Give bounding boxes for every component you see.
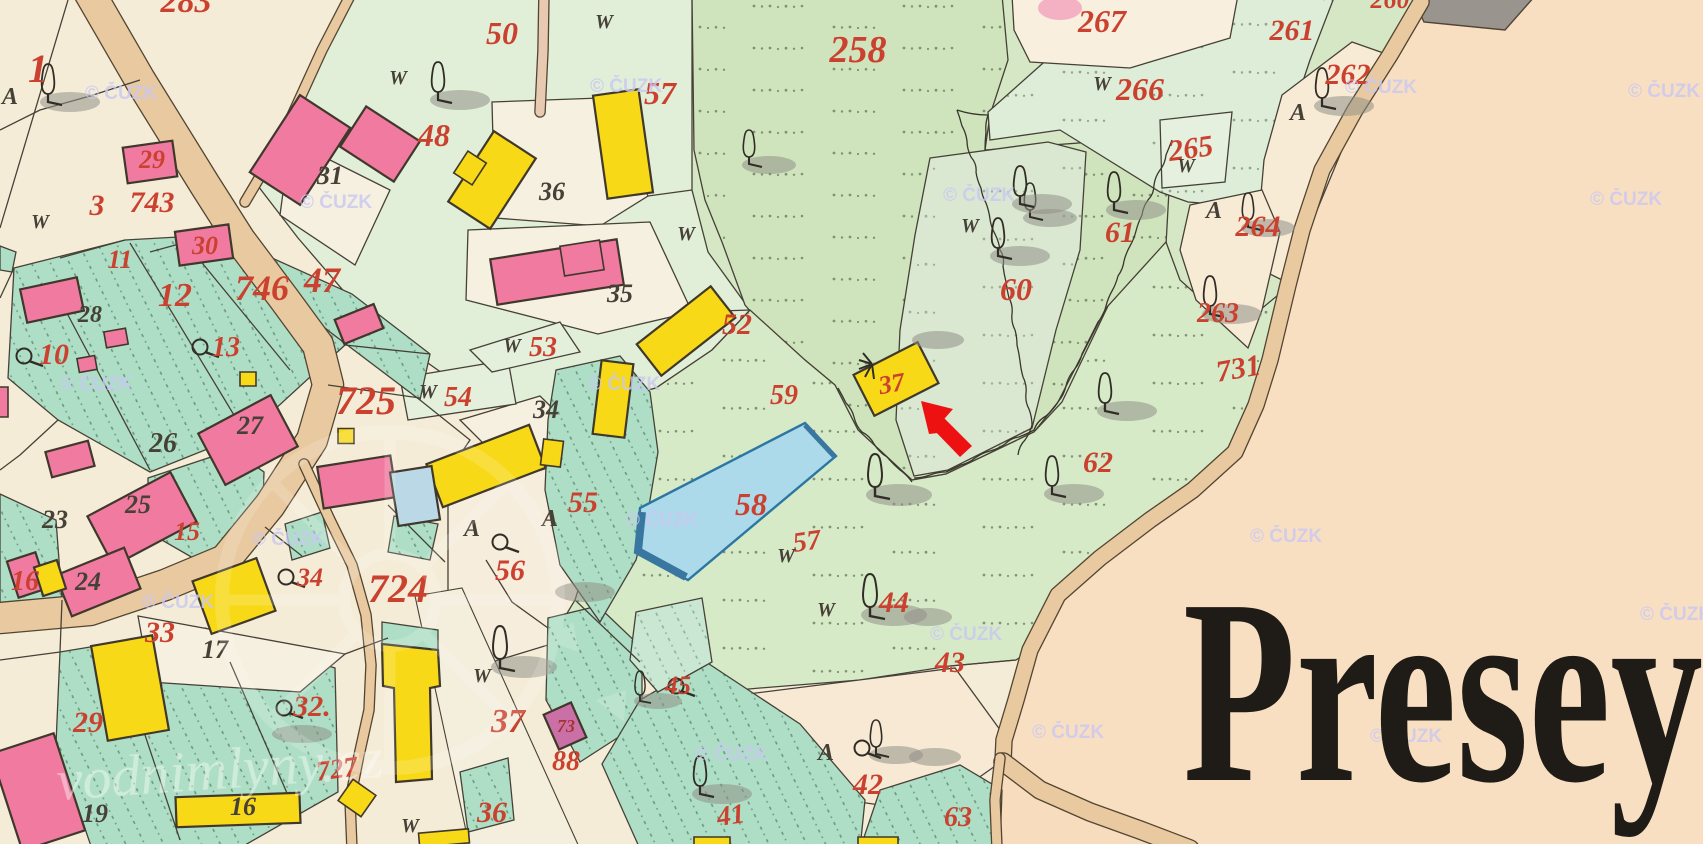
svg-text:© ČUZK: © ČUZK <box>60 373 132 395</box>
svg-text:Presey: Presey <box>1183 546 1703 838</box>
svg-text:© ČUZK: © ČUZK <box>626 509 698 531</box>
svg-text:© ČUZK: © ČUZK <box>252 528 324 550</box>
svg-text:© ČUZK: © ČUZK <box>85 82 157 104</box>
svg-text:© ČUZK: © ČUZK <box>300 191 372 213</box>
svg-text:© ČUZK: © ČUZK <box>1345 76 1417 98</box>
svg-text:© ČUZK: © ČUZK <box>1590 188 1662 210</box>
svg-text:© ČUZK: © ČUZK <box>695 743 767 765</box>
svg-text:© ČUZK: © ČUZK <box>943 184 1015 206</box>
svg-text:© ČUZK: © ČUZK <box>590 75 662 97</box>
svg-text:© ČUZK: © ČUZK <box>1032 721 1104 743</box>
svg-text:© ČUZK: © ČUZK <box>1250 525 1322 547</box>
svg-text:© ČUZK: © ČUZK <box>930 623 1002 645</box>
svg-text:© ČUZK: © ČUZK <box>142 591 214 613</box>
svg-text:© ČUZK: © ČUZK <box>1628 80 1700 102</box>
svg-text:© ČUZK: © ČUZK <box>588 373 660 395</box>
